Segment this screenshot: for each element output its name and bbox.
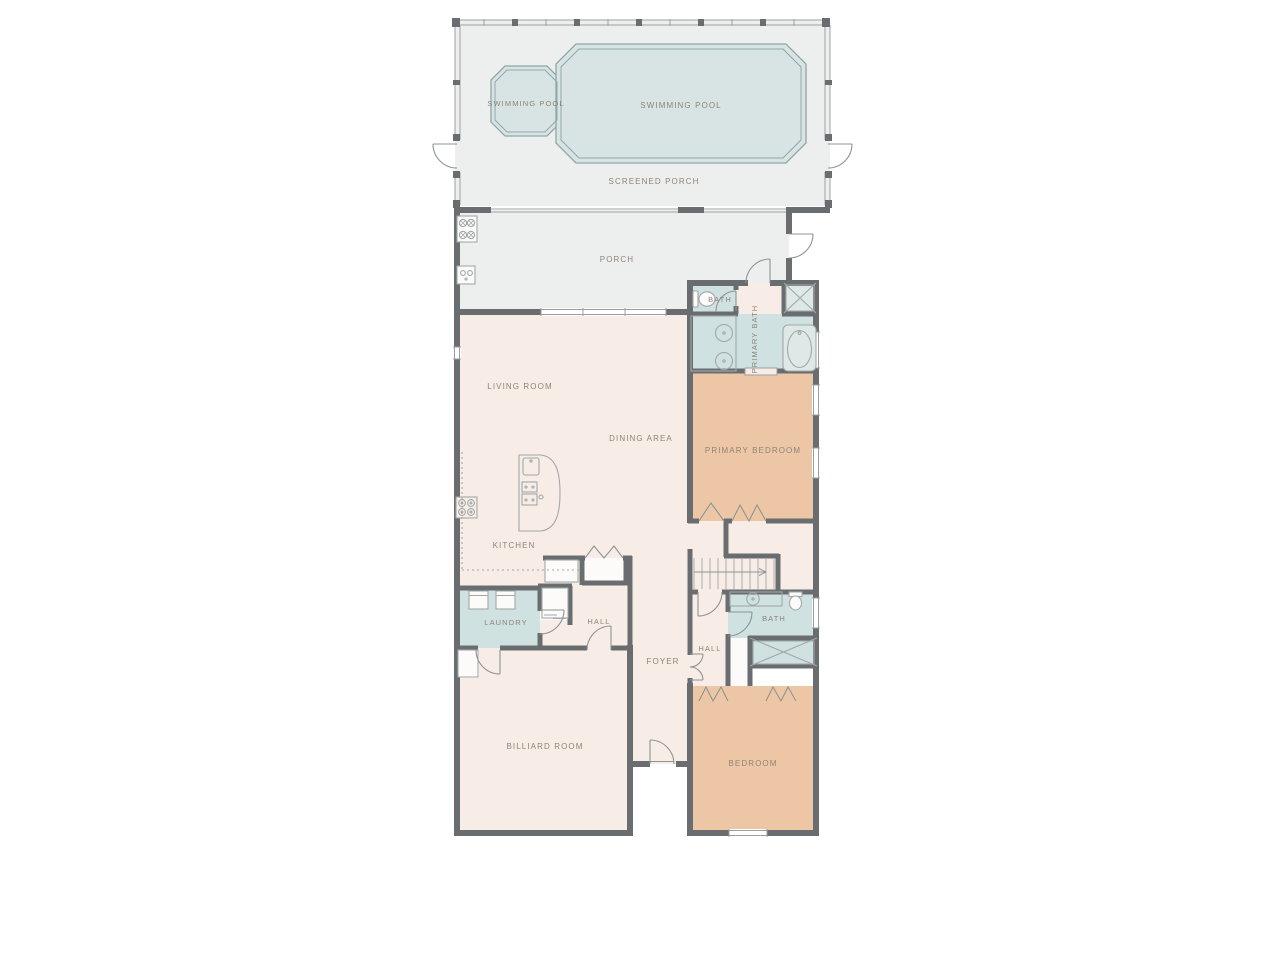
kitchen-island — [519, 455, 560, 531]
floor-plan-drawing: SWIMMING POOL SWIMMING POOL SCREENED POR… — [0, 0, 1280, 960]
label-laundry: LAUNDRY — [484, 618, 527, 627]
label-billiard-room: BILLIARD ROOM — [507, 742, 584, 751]
guest-toilet-icon — [789, 592, 802, 610]
label-primary-bedroom: PRIMARY BEDROOM — [705, 446, 801, 455]
window-living-left — [453, 347, 461, 359]
window-dining-top — [541, 308, 666, 316]
floor-plan-page: SWIMMING POOL SWIMMING POOL SCREENED POR… — [0, 0, 1280, 960]
door-porch-exterior — [789, 234, 813, 258]
label-bedroom: BEDROOM — [728, 759, 777, 768]
pantry-floor — [582, 558, 626, 583]
window-primary-bedroom-right-2 — [812, 448, 820, 478]
linen-closet-floor — [728, 638, 750, 686]
label-bath: BATH — [762, 614, 786, 623]
label-hall-left: HALL — [587, 617, 610, 626]
kitchen-cabinet — [545, 560, 578, 582]
window-guest-bath-right — [812, 598, 820, 628]
billiard-closet — [458, 650, 478, 677]
door-screened-porch-right — [828, 144, 852, 168]
label-kitchen: KITCHEN — [493, 541, 536, 550]
porch-sink-counter — [457, 266, 475, 284]
label-primary-bath: PRIMARY BATH — [750, 305, 759, 374]
label-porch: PORCH — [600, 255, 634, 264]
suite-vestibule-floor — [736, 283, 784, 314]
door-screened-porch-left — [433, 144, 457, 168]
label-bath-wc: BATH — [708, 295, 732, 304]
label-screened-porch: SCREENED PORCH — [609, 177, 700, 186]
label-swimming-pool-small: SWIMMING POOL — [487, 99, 564, 108]
bathtub-icon — [783, 325, 816, 371]
label-hall-right: HALL — [698, 644, 721, 653]
hall-right-floor — [690, 592, 728, 686]
label-dining-area: DINING AREA — [609, 434, 673, 443]
label-swimming-pool-main: SWIMMING POOL — [640, 101, 721, 110]
grill-icon — [457, 216, 477, 242]
label-living-room: LIVING ROOM — [487, 382, 552, 391]
range-cooktop-icon — [456, 497, 477, 518]
window-bedroom-bottom — [729, 829, 767, 837]
window-primary-bedroom-right-1 — [812, 385, 820, 415]
label-foyer: FOYER — [646, 657, 679, 666]
